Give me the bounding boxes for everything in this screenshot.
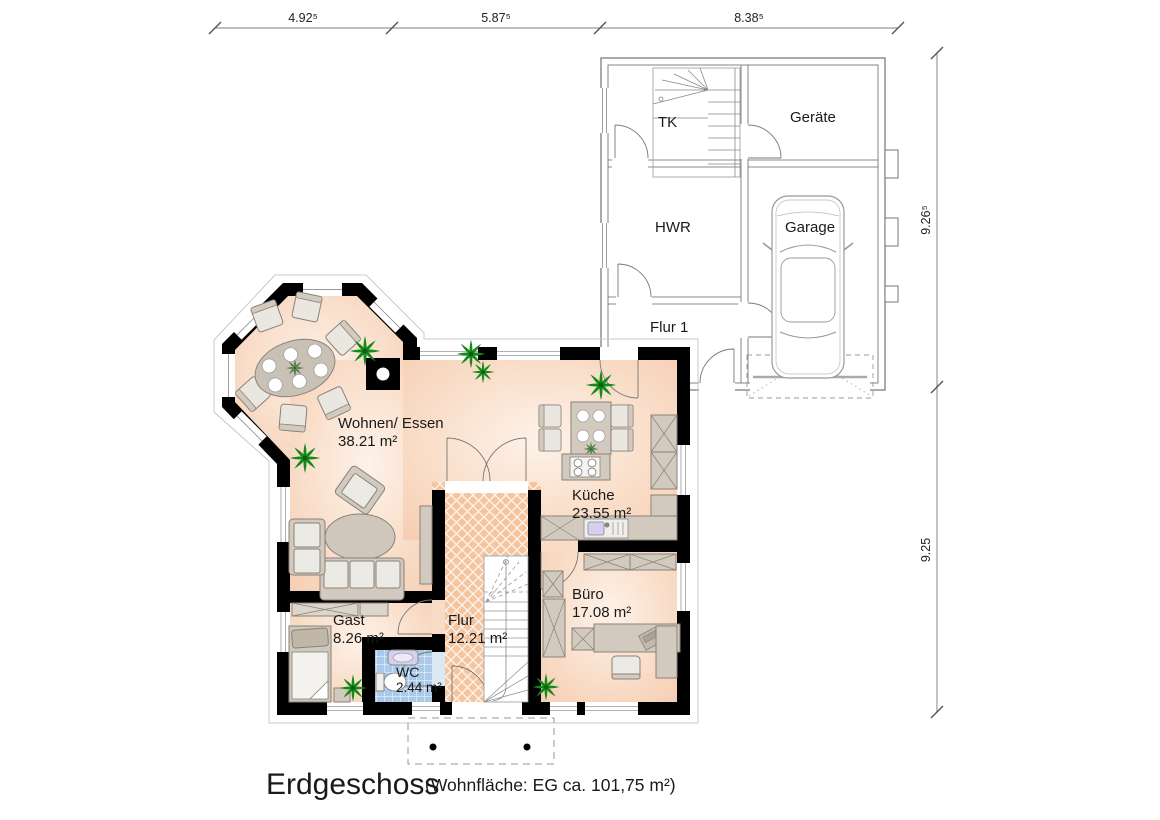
plant-icon — [472, 361, 495, 384]
room-label-gast: Gast — [333, 612, 366, 629]
plant-icon — [290, 443, 320, 473]
room-label-flur1: Flur 1 — [650, 319, 688, 336]
buero-cabinet — [656, 626, 677, 678]
room-label-kueche: Küche — [572, 487, 615, 504]
floor-plan: 4.92⁵ 5.87⁵ 8.38⁵ 9.26⁵ 9.25 — [0, 0, 1160, 820]
tv-board — [420, 506, 432, 584]
room-area-wohnen: 38.21 m² — [338, 433, 397, 450]
chimney — [366, 358, 400, 390]
plant-icon — [586, 370, 616, 400]
room-label-wohnen: Wohnen/ Essen — [338, 415, 444, 432]
plant-icon — [350, 336, 380, 366]
dim-top-2: 5.87⁵ — [481, 11, 511, 25]
dim-top-1: 4.92⁵ — [288, 11, 318, 25]
room-label-hwr: HWR — [655, 219, 691, 236]
sofa-two-seat — [289, 519, 325, 575]
sofa-three-seat — [320, 558, 404, 600]
room-label-garage: Garage — [785, 219, 835, 236]
plant-icon — [340, 675, 367, 702]
room-area-wc: 2.44 m² — [396, 680, 442, 695]
dim-right-1: 9.26⁵ — [919, 205, 933, 235]
stove — [562, 454, 610, 480]
floor-plan-page: 4.92⁵ 5.87⁵ 8.38⁵ 9.26⁵ 9.25 — [0, 0, 1160, 820]
dimension-line-right: 9.26⁵ 9.25 — [919, 47, 943, 718]
plan-title: Erdgeschoss — [266, 768, 439, 801]
dim-right-2: 9.25 — [919, 538, 933, 562]
dimension-line-top: 4.92⁵ 5.87⁵ 8.38⁵ — [209, 11, 904, 34]
room-label-tk: TK — [658, 114, 677, 131]
plan-subtitle: (Wohnfläche: EG ca. 101,75 m²) — [425, 775, 676, 795]
room-area-flur: 12.21 m² — [448, 630, 507, 647]
room-area-kueche: 23.55 m² — [572, 505, 631, 522]
plant-icon — [533, 674, 560, 701]
room-label-buero: Büro — [572, 586, 604, 603]
garage-pilasters — [885, 150, 898, 302]
dim-top-3: 8.38⁵ — [734, 11, 764, 25]
room-area-buero: 17.08 m² — [572, 604, 631, 621]
plant-icon — [287, 360, 304, 377]
nightstand — [334, 688, 350, 702]
room-label-geraete: Geräte — [790, 109, 836, 126]
room-label-wc: WC — [396, 664, 419, 680]
office-chair — [612, 656, 640, 679]
stair — [484, 556, 528, 702]
room-area-gast: 8.26 m² — [333, 630, 384, 647]
plant-icon — [457, 340, 486, 369]
room-label-flur: Flur — [448, 612, 474, 629]
bed — [289, 626, 331, 702]
entrance-porch — [408, 718, 554, 764]
